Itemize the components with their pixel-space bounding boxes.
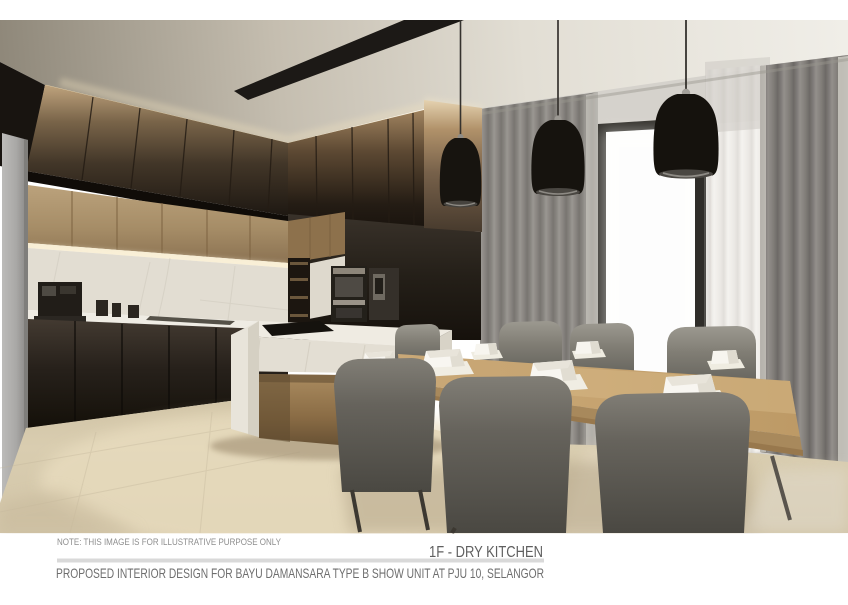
svg-text:NOTE: THIS IMAGE IS FOR ILLUST: NOTE: THIS IMAGE IS FOR ILLUSTRATIVE PUR… — [57, 537, 282, 548]
svg-text:1F - DRY KITCHEN: 1F - DRY KITCHEN — [429, 544, 543, 561]
svg-text:PROPOSED INTERIOR DESIGN FOR B: PROPOSED INTERIOR DESIGN FOR BAYU DAMANS… — [56, 565, 544, 581]
